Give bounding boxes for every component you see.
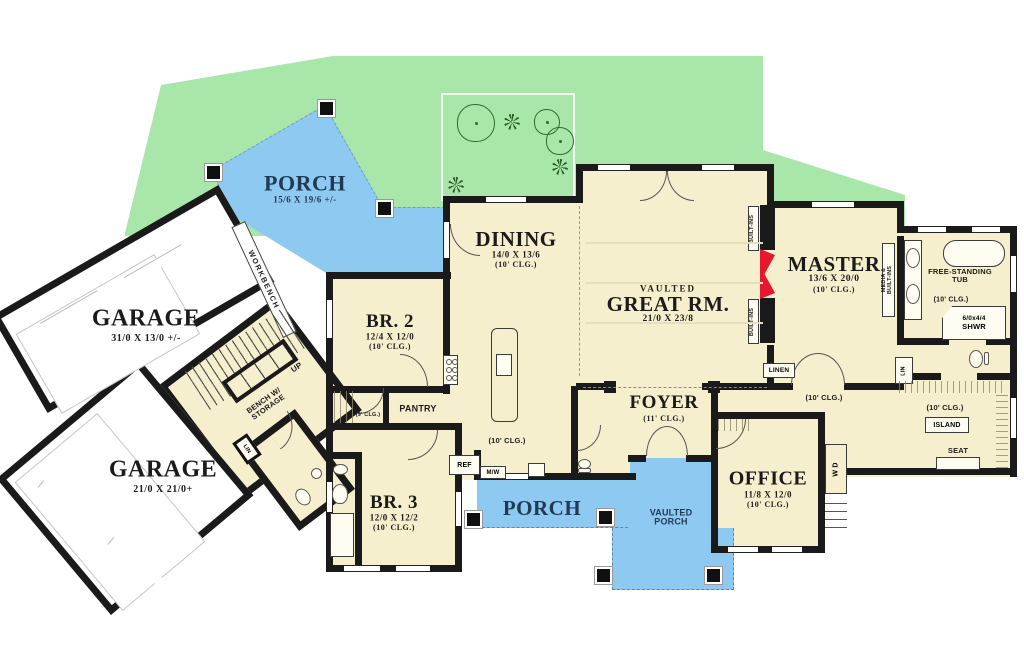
window: [1010, 398, 1017, 438]
porch-pillar: [376, 200, 393, 217]
linen-label: LINEN: [769, 367, 790, 374]
wall: [844, 383, 904, 390]
window: [486, 196, 526, 203]
room-dims-rear-porch: 15/6 X 19/6 +/-: [273, 195, 336, 204]
window: [598, 164, 630, 171]
island-label: ISLAND: [933, 422, 960, 429]
room-clg-foyer: (11' CLG.): [643, 415, 684, 423]
hall-10clg-label: (10' CLG.): [805, 394, 842, 402]
tub-label: FREE-STANDINGTUB: [928, 268, 992, 284]
wall: [767, 383, 793, 390]
wall: [711, 412, 825, 419]
room-label-rear-porch: PORCH: [264, 171, 346, 194]
refrigerator: REF: [449, 455, 480, 475]
microwave: M/W: [480, 466, 506, 479]
closet-shelving: [996, 393, 1008, 468]
porch-pillar: [597, 509, 614, 526]
room-label-front-porch: PORCH: [503, 497, 581, 519]
wall: [818, 412, 825, 552]
washer-dryer-closet: W D: [825, 444, 847, 494]
room-label-br3: BR. 3: [370, 493, 418, 513]
sink: [333, 464, 348, 475]
sink: [528, 463, 545, 477]
window-seat: [936, 457, 980, 470]
room-label-foyer: FOYER: [630, 393, 699, 413]
window: [455, 492, 462, 526]
seat-label: SEAT: [948, 447, 968, 455]
free-standing-tub: [943, 240, 1005, 267]
pantry-label: PANTRY: [399, 404, 436, 413]
window: [728, 546, 758, 553]
shrub-symbol: [552, 159, 568, 175]
shwr-label: SHWR: [962, 322, 986, 331]
tree-symbol: [457, 104, 495, 142]
linen-closet-hall: LIN: [895, 357, 913, 384]
sink: [906, 284, 920, 304]
wall: [686, 455, 718, 462]
lin-hall-label: LIN: [901, 366, 907, 375]
window: [918, 226, 946, 233]
room-label-vaulted-porch: VAULTEDPORCH: [650, 509, 693, 528]
linen-cabinet: LINEN: [763, 363, 795, 378]
room-label-master: MASTER: [788, 253, 881, 275]
porch-pillar: [705, 567, 722, 584]
kitchen-clg-label: (10' CLG.): [488, 437, 525, 445]
wd-label: W D: [833, 462, 840, 476]
room-clg-br2: (10' CLG.): [369, 343, 411, 351]
room-dims-br2: 12/4 X 12/0: [366, 332, 415, 341]
room-label-great: GREAT RM.: [607, 293, 730, 315]
window: [772, 546, 802, 553]
burner: [452, 359, 458, 365]
wall: [355, 452, 362, 565]
door-opening: [443, 222, 450, 258]
room-dims-office: 11/8 X 12/0: [744, 490, 792, 499]
open-wall-dashed: [583, 387, 767, 388]
built-ins-label: BUILT-INS: [750, 215, 756, 243]
toilet-tank: [984, 352, 989, 365]
closet-island: ISLAND: [925, 417, 969, 433]
wall: [326, 272, 451, 279]
room-dims-master: 13/6 X 20/0: [809, 275, 860, 285]
room-dims-garage-lower: 21/0 X 21/0+: [133, 485, 192, 496]
window: [812, 201, 854, 208]
wall: [326, 452, 362, 459]
island-sink: [496, 354, 512, 376]
ref-label: REF: [457, 462, 472, 469]
window: [326, 300, 333, 338]
porch-pillar: [205, 164, 222, 181]
wall: [897, 236, 904, 342]
shrub-symbol: [504, 114, 520, 130]
room-dims-garage-upper: 31/0 X 13/0 +/-: [111, 334, 181, 345]
room-label-garage-lower: GARAGE: [109, 457, 217, 482]
wall: [897, 338, 949, 345]
shwr-dims-label: 6/0x4/4: [962, 315, 985, 322]
porch-pillar: [595, 567, 612, 584]
room-label-br2: BR. 2: [366, 312, 414, 332]
window: [396, 565, 430, 572]
room-clg-master: (10' CLG.): [813, 286, 855, 294]
basement-stairs: [825, 498, 847, 528]
room-clg-office: (10' CLG.): [747, 501, 789, 509]
room-dims-br3: 12/0 X 12/2: [370, 513, 419, 522]
wall: [326, 423, 462, 430]
room-clg-br3: (10' CLG.): [373, 524, 415, 532]
tree-symbol: [546, 127, 574, 155]
toilet-tank: [578, 468, 591, 473]
room-dims-dining: 14/0 X 13/6: [492, 250, 541, 259]
room-label-garage-upper: GARAGE: [92, 306, 200, 331]
open-wall-dashed: [579, 206, 580, 376]
room-dims-great: 21/0 X 23/8: [643, 315, 694, 325]
hall-9clg-label: (9' CLG.): [356, 413, 381, 419]
media-built-ins-label: MEDIA &BUILT-INS: [882, 266, 894, 294]
wall: [383, 389, 389, 425]
porch-pillar: [318, 100, 335, 117]
window: [344, 565, 380, 572]
shrub-symbol: [448, 177, 464, 193]
wall: [977, 373, 1017, 380]
sink: [311, 468, 322, 479]
shower-enclosure: 6/0x4/4 SHWR: [942, 306, 1006, 340]
toilet: [969, 350, 983, 368]
toilet: [332, 484, 348, 504]
burner: [452, 375, 458, 381]
linen-closet-mud-label: LIN: [242, 443, 252, 454]
mw-label: M/W: [487, 470, 500, 476]
ceiling-beam: [585, 242, 763, 244]
closet-shelving: [899, 381, 1005, 393]
room-label-dining: DINING: [475, 228, 556, 250]
window: [972, 226, 1000, 233]
sink: [906, 248, 920, 268]
window: [1010, 256, 1017, 292]
window: [702, 164, 734, 171]
room-clg-dining: (10' CLG.): [495, 261, 537, 269]
floor-plan-canvas: PORCH 15/6 X 19/6 +/- WORKBENCH GARAGE 3…: [0, 0, 1024, 654]
wall: [628, 455, 646, 462]
burner: [452, 367, 458, 373]
room-label-office: OFFICE: [729, 469, 808, 490]
shower: [330, 513, 354, 557]
closet-clg-label: (10' CLG.): [926, 404, 963, 412]
closet-shelving: [718, 419, 754, 431]
built-in-wall: [760, 298, 775, 343]
porch-pillar: [465, 511, 482, 528]
bath-clg-label: (10' CLG.): [934, 296, 969, 303]
closet-shelving: [334, 391, 356, 423]
